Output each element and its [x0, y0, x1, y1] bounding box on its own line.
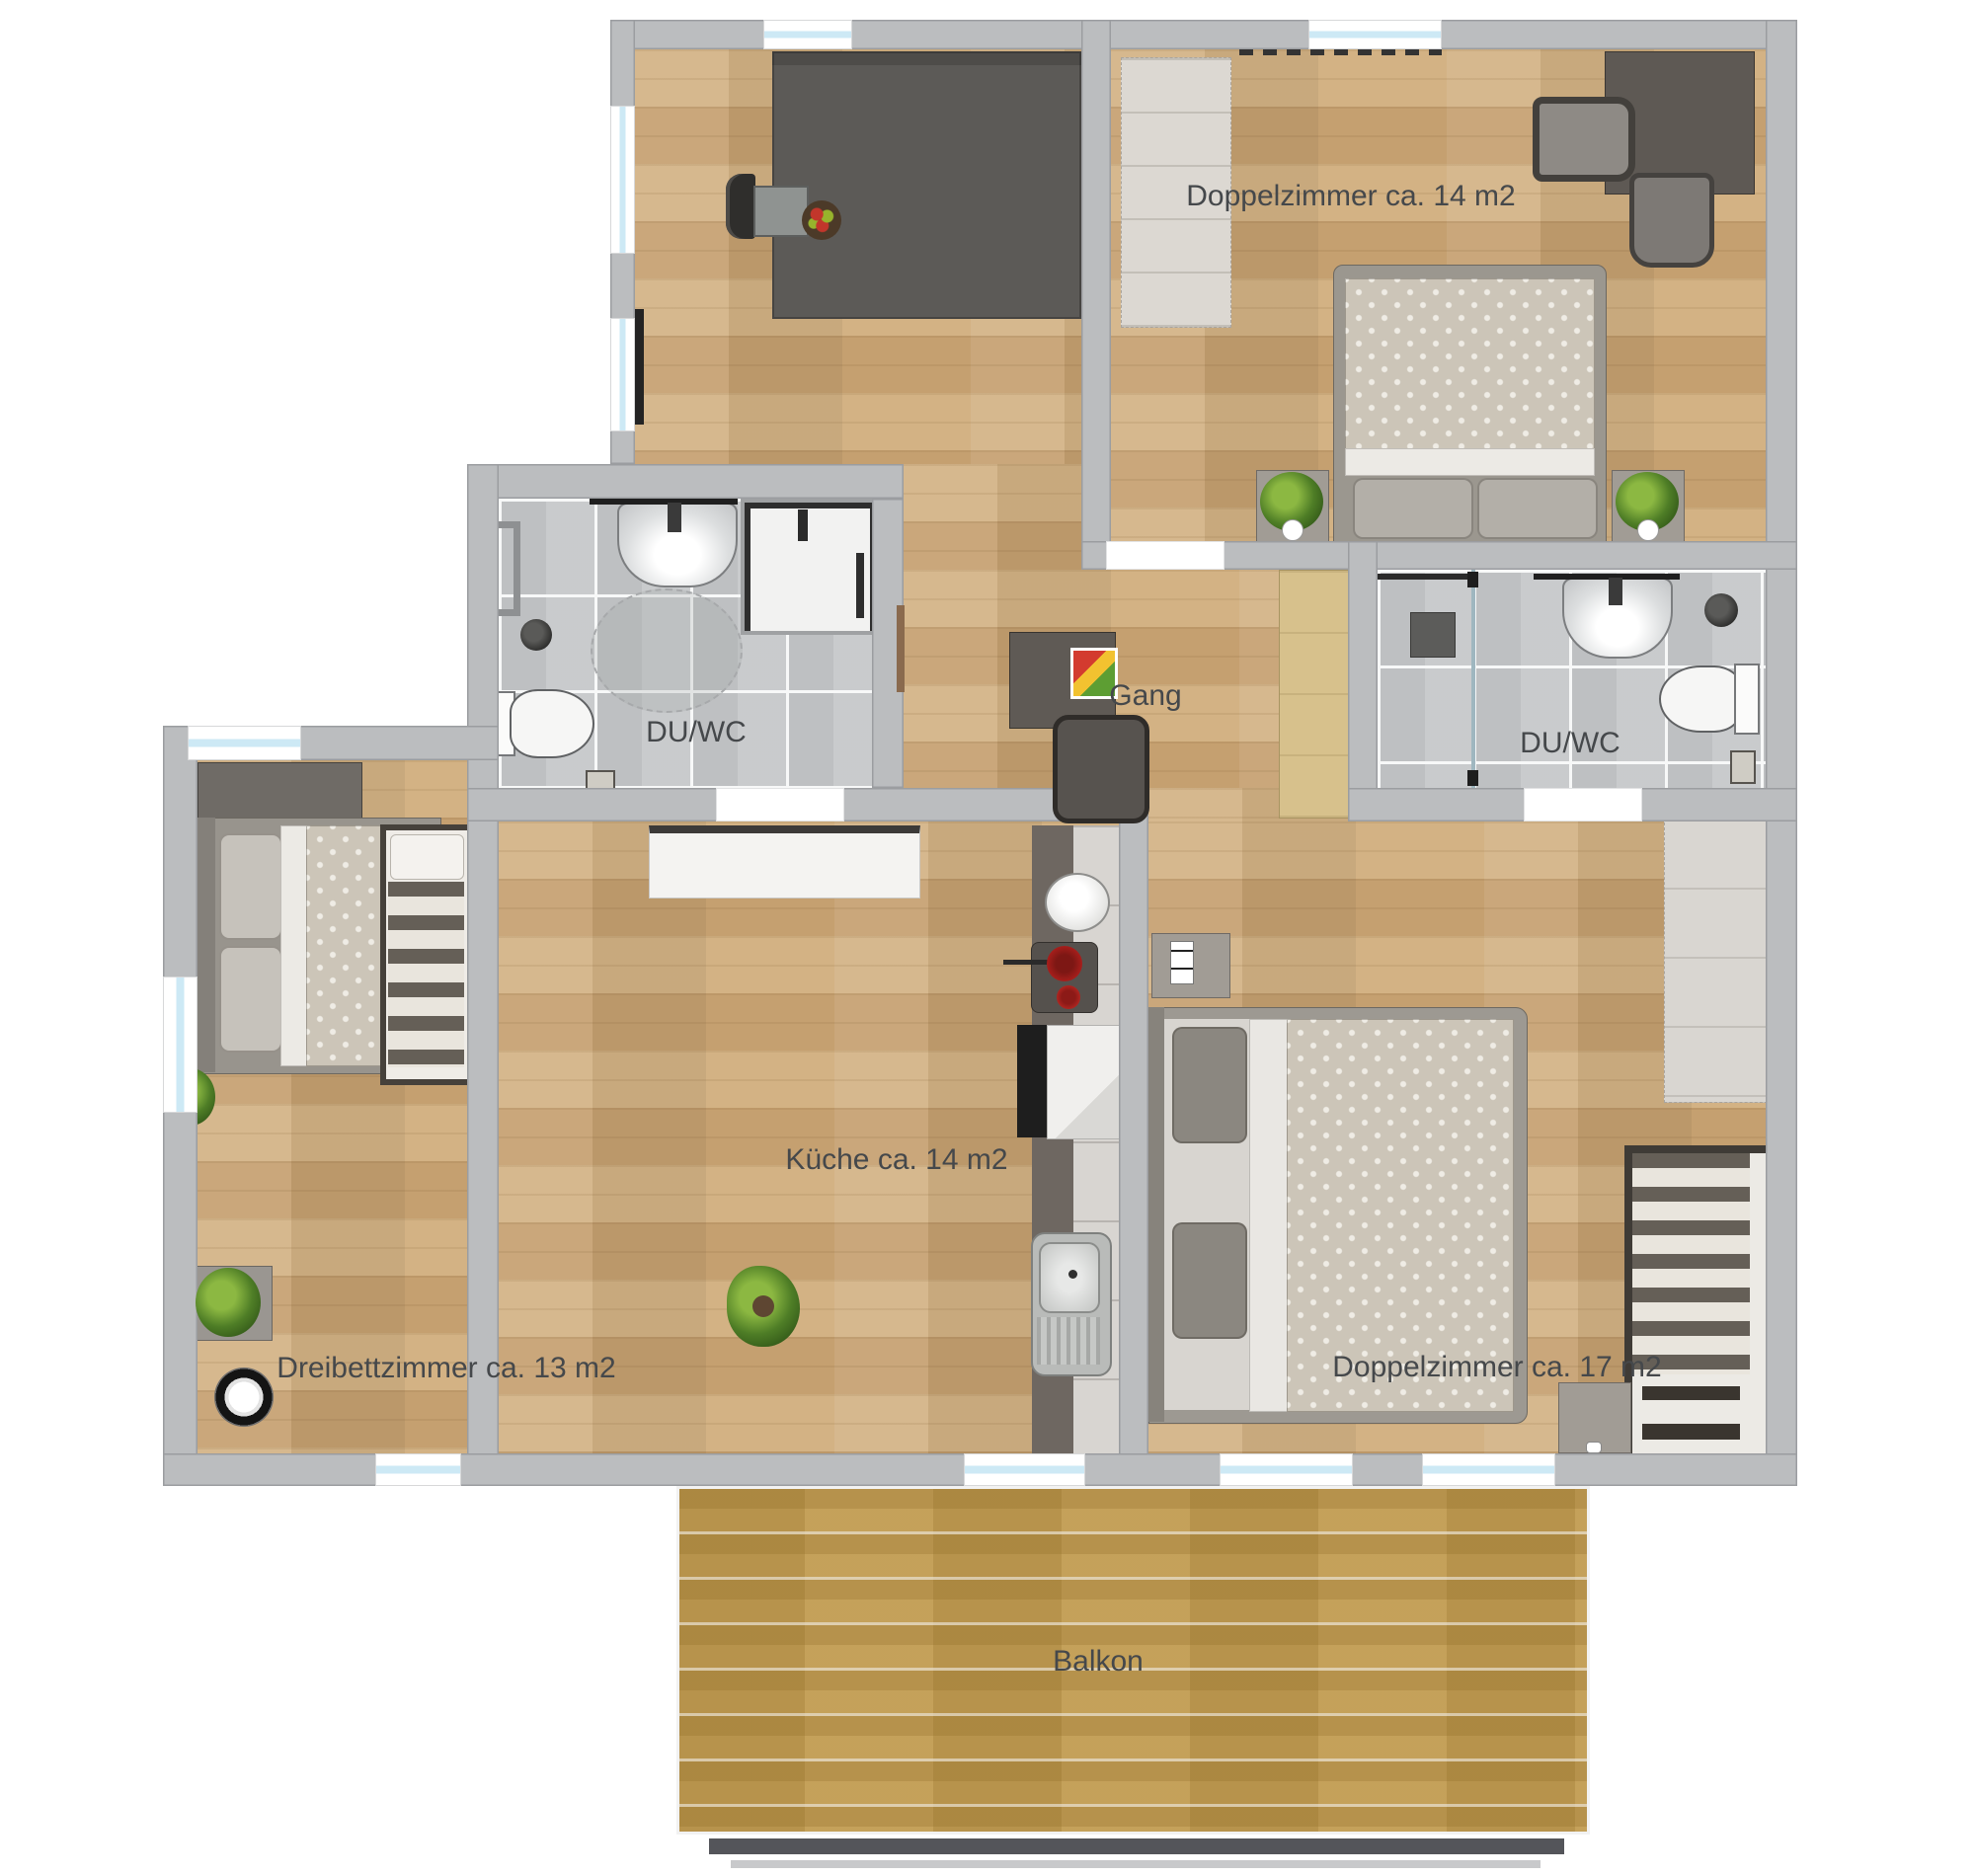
room-label-dreibettzimmer: Dreibettzimmer ca. 13 m2 — [276, 1352, 615, 1385]
bed-bedroom17-pillow-bottom — [1172, 1222, 1247, 1339]
nightstand2-knob — [1586, 1442, 1602, 1453]
dining-rug — [772, 51, 1081, 319]
faucet-bathright — [1609, 578, 1622, 605]
room-label-gang: Gang — [1109, 679, 1181, 713]
room-label-doppelzimmer-14: Doppelzimmer ca. 14 m2 — [1186, 180, 1515, 213]
window-dining-left-lower — [610, 318, 635, 431]
floor-lamp-dreibett — [202, 1356, 285, 1439]
kitchen-plant-pot — [752, 1295, 774, 1317]
room-label-duwc-left: DU/WC — [646, 716, 747, 749]
kitchen-sink-faucet — [1068, 1270, 1077, 1279]
wall-dining-bedroom14 — [1081, 20, 1111, 570]
wall-right-outer — [1766, 20, 1797, 1486]
kitchen-sink-drainer — [1037, 1317, 1100, 1365]
sideboard-dreibett — [197, 762, 362, 820]
bed-bedroom17-sheet — [1249, 1019, 1289, 1412]
window-kitchen-bottom — [964, 1453, 1085, 1486]
shelf-bathleft — [590, 499, 738, 505]
wall-left-spine — [467, 464, 499, 1486]
dining-chair — [726, 174, 755, 239]
vase-bedroom14-right — [1637, 519, 1659, 541]
tv-board — [635, 309, 644, 425]
window-dreibett-top — [188, 726, 301, 760]
fruit-bowl — [802, 200, 841, 240]
kitchen-oven-door — [1017, 1025, 1047, 1137]
door-bathright — [1524, 788, 1642, 821]
shower-head-bathright — [1410, 612, 1456, 658]
room-label-doppelzimmer-17: Doppelzimmer ca. 17 m2 — [1332, 1351, 1661, 1384]
window-bedroom17-bottom-left — [1220, 1453, 1353, 1486]
window-dining-top — [763, 20, 852, 49]
plant-dreibett-large — [196, 1268, 261, 1337]
bed-bedroom17-pillow-top — [1172, 1027, 1247, 1143]
book-bedroom17 — [1170, 941, 1194, 984]
bed-dreibett-pillow-bottom — [219, 946, 282, 1053]
faucet-bathleft — [668, 503, 681, 532]
wall-bathright-left — [1348, 541, 1378, 821]
wall-kitchen-right — [1119, 788, 1148, 1486]
room-label-duwc-right: DU/WC — [1520, 727, 1620, 760]
wall-bathleft-top — [467, 464, 904, 499]
shelf-bathright — [1534, 574, 1680, 580]
window-bedroom17-bottom-right — [1422, 1453, 1555, 1486]
window-dreibett-left — [163, 977, 197, 1113]
single-bed-dreibett-pillow — [390, 834, 464, 880]
single-bed-bedroom17-duvet — [1632, 1153, 1750, 1374]
single-bed-dreibett-duvet — [388, 882, 464, 1067]
balcony-railing-base — [731, 1860, 1540, 1868]
corridor-floor — [904, 464, 1081, 570]
vase-bedroom14-left — [1282, 519, 1303, 541]
bed-dreibett-pillow-top — [219, 833, 282, 940]
window-bedroom14-top — [1308, 20, 1442, 49]
hall-office-chair — [1053, 715, 1149, 823]
shower-rail-bathright — [1378, 574, 1474, 580]
shower-bathleft-wall-right — [856, 553, 864, 618]
bed-bedroom17-headboard — [1148, 1007, 1164, 1422]
chair-bedroom14 — [1629, 173, 1714, 268]
bed-bedroom14-duvet — [1345, 278, 1595, 450]
wardrobe-bedroom17 — [1664, 818, 1768, 1103]
toilet-bathright — [1659, 665, 1742, 733]
door-bedroom14 — [1106, 541, 1224, 570]
door-bathleft — [716, 788, 844, 821]
armchair-bedroom14 — [1533, 97, 1635, 182]
kitchen-redpot-handle — [1003, 960, 1049, 965]
kitchen-oven — [1047, 1025, 1121, 1139]
rug-bathleft — [591, 588, 743, 713]
toilet-bathleft — [510, 689, 594, 758]
toilet-tank-bathright — [1734, 664, 1760, 735]
glass-hinge-bottom — [1467, 770, 1478, 786]
trashcan-bathleft — [520, 619, 552, 651]
glass-hinge-top — [1467, 572, 1478, 587]
balcony-railing — [709, 1838, 1564, 1854]
room-label-balkon: Balkon — [1053, 1645, 1144, 1679]
window-dining-left-upper — [610, 106, 635, 254]
bed-bedroom14-pillow-left — [1353, 478, 1473, 539]
floor-plan: Doppelzimmer ca. 14 m2 Gang DU/WC DU/WC … — [0, 0, 1975, 1876]
shower-glass-bathright — [1471, 570, 1475, 788]
window-dreibett-bottom — [375, 1453, 461, 1486]
bathleft-door-leaf — [897, 605, 905, 692]
paper-holder-bathright — [1730, 750, 1756, 784]
room-label-kueche: Küche ca. 14 m2 — [785, 1143, 1007, 1177]
luggage-rack-bedroom17 — [1642, 1386, 1740, 1440]
shower-head-bathleft — [798, 509, 808, 541]
curtain-rail — [1239, 49, 1442, 55]
bed-dreibett-sheet — [280, 825, 308, 1066]
kitchen-redpot-small — [1057, 985, 1080, 1009]
hall-cabinet — [1279, 570, 1350, 819]
bed-bedroom14-pillow-right — [1477, 478, 1598, 539]
kitchen-redpot-large — [1047, 946, 1082, 981]
dining-table — [753, 186, 809, 237]
bed-bedroom14-sheet — [1345, 448, 1595, 476]
kitchen-top-cabinet — [649, 825, 920, 899]
bed-dreibett-headboard — [197, 818, 215, 1072]
kitchen-pot — [1045, 873, 1110, 932]
trashcan-bathright — [1704, 593, 1738, 627]
